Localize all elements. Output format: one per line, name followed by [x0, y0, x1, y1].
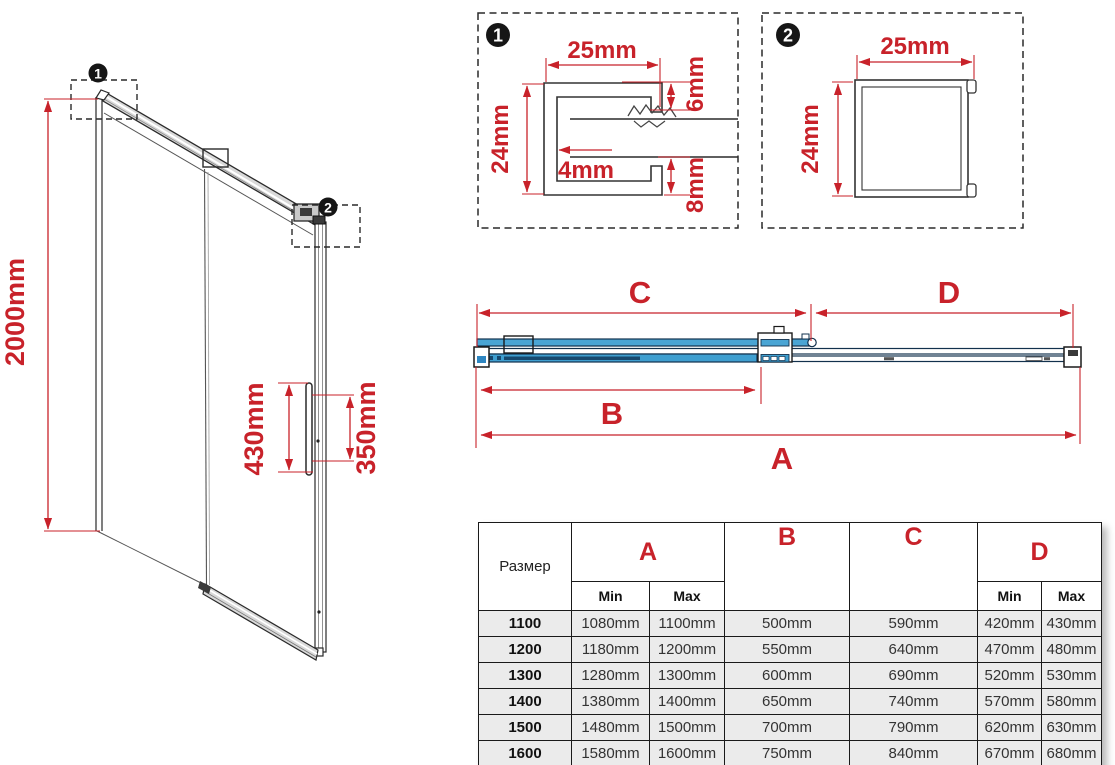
detail-2-number: 2	[783, 26, 793, 46]
fixed-glass-panel	[790, 356, 1064, 362]
table-header-d-max: Max	[1042, 582, 1102, 611]
glass-bottom-edge	[97, 531, 205, 585]
detail-2-height-label: 24mm	[797, 104, 824, 173]
row-b: 750mm	[725, 741, 850, 765]
row-size: 1500	[479, 715, 572, 741]
table-header-d-min: Min	[978, 582, 1042, 611]
dimension-2000mm: 2000mm	[0, 99, 100, 531]
detail-1-wall-profile-section: 1 25mm 24mm 6mm	[478, 13, 738, 228]
dim-d-label: D	[938, 275, 960, 310]
tube-end-cap	[808, 338, 816, 346]
detail-1-bottom-lip-label: 8mm	[682, 157, 709, 213]
row-a-max: 1400mm	[650, 689, 725, 715]
row-a-min: 1380mm	[572, 689, 650, 715]
height-dimension-label: 2000mm	[0, 258, 30, 366]
dimension-a: A	[481, 367, 1080, 476]
row-d-min: 670mm	[978, 741, 1042, 765]
row-d-max: 430mm	[1042, 611, 1102, 637]
row-size: 1400	[479, 689, 572, 715]
row-b: 700mm	[725, 715, 850, 741]
right-wall-profile-plan	[1064, 347, 1081, 367]
dim-a-label: A	[771, 441, 793, 476]
detail-1-width-label: 25mm	[567, 37, 636, 64]
profile-bottom-tab	[967, 184, 976, 197]
stile-top-cap	[313, 216, 325, 224]
row-c: 640mm	[850, 637, 978, 663]
detail-1-height-label: 24mm	[487, 104, 514, 173]
row-size: 1100	[479, 611, 572, 637]
table-row: 1500 1480mm 1500mm 700mm 790mm 620mm 630…	[479, 715, 1102, 741]
row-d-min: 520mm	[978, 663, 1042, 689]
row-d-min: 470mm	[978, 637, 1042, 663]
row-c: 840mm	[850, 741, 978, 765]
table-header-a: A	[572, 523, 725, 582]
row-c: 690mm	[850, 663, 978, 689]
detail-2-dim-25mm: 25mm	[857, 33, 974, 79]
row-size: 1200	[479, 637, 572, 663]
row-a-max: 1500mm	[650, 715, 725, 741]
table-header-d: D	[978, 523, 1102, 582]
right-door-stile	[315, 222, 326, 652]
row-d-max: 680mm	[1042, 741, 1102, 765]
row-d-min: 620mm	[978, 715, 1042, 741]
row-a-min: 1580mm	[572, 741, 650, 765]
row-d-min: 420mm	[978, 611, 1042, 637]
detail-2-width-label: 25mm	[880, 33, 949, 60]
detail-1-dim-8mm: 8mm	[658, 157, 709, 213]
row-c: 590mm	[850, 611, 978, 637]
detail-2-square-profile-section: 2 25mm 24mm	[762, 13, 1023, 228]
dimension-430mm: 430mm	[239, 382, 313, 475]
plan-section-view: C D B A	[474, 275, 1081, 476]
row-a-max: 1200mm	[650, 637, 725, 663]
callout-2-number: 2	[324, 200, 332, 216]
door-handle	[306, 383, 312, 475]
row-a-max: 1100mm	[650, 611, 725, 637]
row-a-min: 1080mm	[572, 611, 650, 637]
dim-c-label: C	[629, 275, 651, 310]
detail-1-top-lip-label: 6mm	[682, 56, 709, 112]
detail-1-wall-label: 4mm	[558, 157, 614, 184]
dimension-b: B	[476, 367, 761, 448]
dimension-d: D	[816, 275, 1073, 348]
row-size: 1600	[479, 741, 572, 765]
row-a-min: 1280mm	[572, 663, 650, 689]
row-b: 550mm	[725, 637, 850, 663]
table-row: 1200 1180mm 1200mm 550mm 640mm 470mm 480…	[479, 637, 1102, 663]
detail-1-dim-4mm: 4mm	[558, 150, 614, 184]
left-wall-profile-plan	[474, 347, 489, 367]
row-c: 790mm	[850, 715, 978, 741]
table-row: 1600 1580mm 1600mm 750mm 840mm 670mm 680…	[479, 741, 1102, 765]
table-row: 1300 1280mm 1300mm 600mm 690mm 520mm 530…	[479, 663, 1102, 689]
row-d-max: 480mm	[1042, 637, 1102, 663]
table-header-c: C	[850, 523, 978, 611]
row-d-max: 580mm	[1042, 689, 1102, 715]
square-profile-inner	[862, 87, 961, 190]
row-c: 740mm	[850, 689, 978, 715]
dim-b-label: B	[601, 396, 623, 431]
bottom-rail	[203, 584, 318, 660]
row-d-max: 630mm	[1042, 715, 1102, 741]
table-header-b: B	[725, 523, 850, 611]
detail-1-dim-24mm: 24mm	[487, 84, 544, 194]
row-a-min: 1480mm	[572, 715, 650, 741]
detail-2-dim-24mm: 24mm	[797, 82, 853, 196]
sliding-glass-edge	[205, 169, 207, 585]
callout-1-number: 1	[94, 66, 102, 82]
table-header-a-max: Max	[650, 582, 725, 611]
row-b: 500mm	[725, 611, 850, 637]
row-d-min: 570mm	[978, 689, 1042, 715]
table-row: 1100 1080mm 1100mm 500mm 590mm 420mm 430…	[479, 611, 1102, 637]
row-a-max: 1600mm	[650, 741, 725, 765]
detail-1-number: 1	[493, 26, 503, 46]
handle-cutout-label: 350mm	[351, 381, 381, 474]
profile-top-tab	[967, 80, 976, 93]
handle-height-label: 430mm	[239, 382, 269, 475]
row-d-max: 530mm	[1042, 663, 1102, 689]
row-a-min: 1180mm	[572, 637, 650, 663]
row-b: 650mm	[725, 689, 850, 715]
table-row: 1400 1380mm 1400mm 650mm 740mm 570mm 580…	[479, 689, 1102, 715]
row-size: 1300	[479, 663, 572, 689]
roller-carriage	[758, 327, 792, 363]
shower-door-technical-drawing: 1 2 2000mm 430mm 350mm 1	[0, 0, 1115, 765]
table-header-a-min: Min	[572, 582, 650, 611]
isometric-door-view: 1 2 2000mm 430mm 350mm	[0, 64, 381, 661]
table-header-size: Размер	[479, 523, 572, 611]
row-a-max: 1300mm	[650, 663, 725, 689]
size-table: Размер A B C D Min Max Min Max 1100 1080…	[478, 522, 1102, 765]
row-b: 600mm	[725, 663, 850, 689]
